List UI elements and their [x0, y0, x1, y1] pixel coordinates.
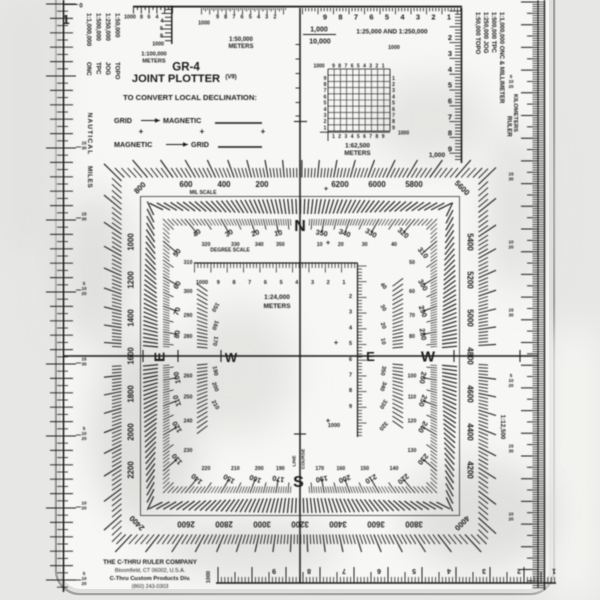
svg-text:9: 9: [448, 144, 452, 153]
svg-text:2: 2: [327, 280, 330, 286]
svg-text:7: 7: [369, 134, 372, 140]
svg-text:8: 8: [338, 13, 342, 22]
svg-text:30: 30: [81, 361, 87, 366]
svg-text:5: 5: [357, 64, 360, 70]
svg-text:METERS: METERS: [142, 59, 166, 65]
svg-text:1:500,000 TPC: 1:500,000 TPC: [490, 12, 496, 53]
svg-text:METERS: METERS: [344, 150, 370, 157]
svg-text:20: 20: [338, 242, 344, 248]
svg-text:4: 4: [351, 134, 354, 140]
svg-text:4: 4: [392, 94, 395, 100]
svg-text:150: 150: [360, 466, 369, 472]
svg-text:10,000: 10,000: [309, 39, 331, 46]
svg-text:JOINT PLOTTER: JOINT PLOTTER: [132, 73, 220, 85]
svg-text:5200: 5200: [466, 271, 475, 289]
svg-text:30: 30: [81, 216, 87, 221]
svg-text:4: 4: [363, 64, 366, 70]
svg-text:6: 6: [448, 97, 452, 106]
svg-text:5400: 5400: [466, 233, 475, 251]
svg-text:5: 5: [349, 341, 352, 347]
svg-text:2: 2: [338, 134, 341, 140]
svg-text:8: 8: [338, 64, 341, 70]
svg-text:7: 7: [345, 64, 348, 70]
svg-text:+: +: [326, 240, 330, 247]
svg-text:MIL SCALE: MIL SCALE: [190, 190, 218, 196]
svg-text:1:25,000 AND 1:250,000: 1:25,000 AND 1:250,000: [356, 29, 428, 36]
svg-text:7: 7: [392, 113, 395, 119]
svg-text:20: 20: [508, 244, 514, 249]
svg-text:2800: 2800: [215, 520, 233, 529]
svg-text:120: 120: [408, 419, 417, 425]
svg-text:9: 9: [323, 13, 327, 22]
svg-text:230: 230: [184, 448, 193, 454]
svg-text:1: 1: [392, 76, 395, 82]
svg-text:6: 6: [241, 15, 244, 21]
svg-text:3400: 3400: [329, 520, 347, 529]
svg-text:10: 10: [317, 242, 323, 248]
svg-text:3: 3: [311, 280, 314, 286]
svg-text:4: 4: [161, 19, 164, 25]
svg-text:1: 1: [342, 280, 345, 286]
svg-text:1,000: 1,000: [429, 152, 446, 159]
svg-text:C-Thru Custom Products Div.: C-Thru Custom Products Div.: [110, 576, 191, 582]
svg-text:1:250,000 JOG: 1:250,000 JOG: [482, 12, 488, 54]
svg-text:N: N: [294, 218, 306, 235]
svg-text:METERS: METERS: [263, 303, 291, 310]
svg-text:7: 7: [349, 373, 352, 379]
svg-text:9: 9: [332, 64, 335, 70]
svg-text:9: 9: [272, 567, 276, 574]
svg-text:1000: 1000: [124, 15, 136, 21]
svg-text:4: 4: [447, 567, 451, 574]
svg-text:8: 8: [232, 280, 235, 286]
svg-text:80: 80: [409, 334, 415, 340]
svg-text:50: 50: [409, 260, 415, 266]
svg-text:W: W: [421, 349, 436, 366]
svg-text:4200: 4200: [466, 461, 475, 479]
svg-text:9: 9: [392, 125, 395, 131]
svg-text:1000: 1000: [196, 280, 208, 286]
svg-text:3: 3: [369, 64, 372, 70]
svg-text:2: 2: [273, 15, 276, 21]
svg-text:5800: 5800: [405, 180, 423, 189]
svg-text:1000: 1000: [398, 131, 409, 137]
svg-text:220: 220: [202, 466, 211, 472]
svg-text:20: 20: [508, 383, 514, 388]
svg-text:20: 20: [81, 436, 87, 441]
svg-text:5: 5: [357, 134, 360, 140]
svg-text:130: 130: [408, 448, 417, 454]
svg-text:250: 250: [184, 395, 193, 401]
svg-text:4: 4: [156, 15, 159, 21]
svg-text:1:1,000,000 ONC & MILLIMETER: 1:1,000,000 ONC & MILLIMETER: [498, 12, 504, 104]
svg-text:3200: 3200: [291, 520, 309, 529]
svg-text:70: 70: [409, 313, 415, 319]
svg-text:5: 5: [324, 101, 327, 107]
svg-text:THE C-THRU RULER COMPANY: THE C-THRU RULER COMPANY: [103, 559, 198, 566]
svg-text:3: 3: [265, 15, 268, 21]
svg-text:6: 6: [363, 134, 366, 140]
svg-text:6: 6: [377, 567, 381, 574]
svg-text:ONC: ONC: [85, 62, 92, 76]
svg-text:1:250,000: 1:250,000: [104, 13, 111, 41]
svg-text:8: 8: [448, 128, 452, 137]
svg-text:JOG: JOG: [104, 62, 111, 75]
svg-text:(V9): (V9): [225, 75, 236, 81]
svg-text:6: 6: [148, 15, 151, 21]
svg-text:MILES: MILES: [86, 166, 93, 189]
svg-text:(860) 243-0303: (860) 243-0303: [132, 584, 169, 590]
svg-text:2000: 2000: [126, 423, 135, 441]
svg-text:4400: 4400: [466, 423, 475, 441]
svg-text:310: 310: [184, 260, 193, 266]
svg-text:5: 5: [280, 280, 283, 286]
svg-text:240: 240: [184, 419, 193, 425]
svg-text:1:50,000: 1:50,000: [114, 13, 121, 38]
svg-text:3: 3: [392, 88, 395, 94]
svg-text:1: 1: [62, 12, 69, 27]
svg-text:5: 5: [412, 567, 416, 574]
svg-text:4600: 4600: [466, 385, 475, 403]
svg-text:TO CONVERT LOCAL DECLINATION:: TO CONVERT LOCAL DECLINATION:: [123, 93, 257, 102]
svg-text:340: 340: [255, 242, 264, 248]
svg-text:4: 4: [324, 107, 327, 113]
svg-text:METERS: METERS: [228, 44, 253, 50]
svg-text:TOPO: TOPO: [114, 62, 121, 80]
svg-text:1:12,500: 1:12,500: [499, 415, 506, 440]
svg-text:160: 160: [336, 466, 345, 472]
svg-text:3: 3: [482, 567, 486, 574]
svg-text:1400: 1400: [126, 309, 135, 327]
svg-text:GR-4: GR-4: [172, 62, 200, 74]
svg-text:9: 9: [217, 280, 220, 286]
svg-text:40: 40: [391, 242, 397, 248]
svg-text:7: 7: [248, 280, 251, 286]
svg-text:5: 5: [385, 13, 389, 22]
svg-text:1:1,000,000: 1:1,000,000: [85, 13, 92, 47]
svg-text:9: 9: [349, 404, 352, 410]
svg-text:1: 1: [324, 125, 327, 131]
svg-text:6000: 6000: [368, 180, 386, 189]
svg-text:S: S: [293, 474, 304, 491]
svg-text:MAGNETIC: MAGNETIC: [114, 140, 152, 149]
svg-text:2: 2: [349, 294, 352, 300]
svg-text:200: 200: [255, 466, 264, 472]
svg-text:1:100,000: 1:100,000: [141, 52, 166, 58]
svg-text:6: 6: [351, 64, 354, 70]
svg-text:1000: 1000: [388, 45, 400, 51]
svg-text:6: 6: [160, 26, 163, 32]
svg-text:2: 2: [324, 119, 327, 125]
svg-text:1: 1: [332, 134, 335, 140]
svg-text:6: 6: [392, 107, 395, 113]
svg-text:1000: 1000: [206, 571, 212, 583]
svg-text:COURSE: COURSE: [301, 448, 307, 469]
svg-text:600: 600: [179, 180, 193, 189]
svg-text:8: 8: [140, 15, 143, 21]
svg-text:2: 2: [517, 567, 521, 574]
svg-text:1: 1: [447, 13, 451, 22]
svg-text:6: 6: [264, 280, 267, 286]
svg-text:8: 8: [392, 119, 395, 125]
svg-text:7: 7: [232, 15, 235, 21]
svg-text:3: 3: [349, 310, 352, 316]
svg-text:Bloomfield, CT 06002, U.S.A.: Bloomfield, CT 06002, U.S.A.: [115, 568, 185, 574]
svg-text:RULER: RULER: [506, 116, 512, 137]
svg-text:8: 8: [376, 134, 379, 140]
svg-text:20: 20: [81, 291, 87, 296]
svg-text:+: +: [139, 127, 144, 136]
svg-text:1800: 1800: [126, 385, 135, 403]
svg-text:260: 260: [184, 374, 193, 380]
svg-text:3: 3: [324, 113, 327, 119]
svg-text:1:62,500: 1:62,500: [345, 143, 370, 150]
svg-text:+: +: [261, 127, 266, 136]
svg-text:1000: 1000: [126, 233, 135, 251]
svg-text:100: 100: [408, 374, 417, 380]
svg-text:2: 2: [392, 82, 395, 88]
svg-text:1:50,000 TOPO: 1:50,000 TOPO: [474, 12, 480, 55]
svg-text:2: 2: [448, 33, 452, 42]
svg-text:110: 110: [408, 395, 416, 401]
svg-text:30: 30: [508, 312, 514, 317]
svg-text:9: 9: [216, 15, 219, 21]
svg-text:4800: 4800: [466, 347, 475, 365]
svg-text:8: 8: [324, 82, 327, 88]
svg-text:1000: 1000: [313, 64, 324, 70]
svg-text:1600: 1600: [126, 347, 135, 365]
svg-text:6: 6: [349, 357, 352, 363]
svg-text:300: 300: [184, 289, 193, 295]
svg-text:8: 8: [160, 34, 163, 40]
svg-text:9: 9: [324, 76, 327, 82]
svg-text:10: 10: [379, 338, 386, 345]
svg-text:+: +: [200, 127, 205, 136]
svg-text:5000: 5000: [466, 309, 475, 327]
svg-text:3: 3: [416, 13, 420, 22]
svg-text:400: 400: [217, 180, 231, 189]
svg-text:DEGREE SCALE: DEGREE SCALE: [210, 248, 250, 254]
svg-text:8: 8: [307, 567, 311, 574]
svg-text:W: W: [225, 350, 238, 365]
svg-text:1200: 1200: [126, 271, 135, 289]
svg-text:7: 7: [354, 13, 358, 22]
svg-text:1000: 1000: [152, 42, 164, 48]
svg-text:MAGNETIC: MAGNETIC: [163, 116, 201, 125]
svg-text:E: E: [366, 349, 375, 364]
svg-text:1:500,000: 1:500,000: [95, 13, 102, 41]
svg-text:KILOMETERS: KILOMETERS: [512, 94, 518, 132]
svg-text:190: 190: [276, 466, 285, 472]
svg-text:1:24,000: 1:24,000: [264, 294, 290, 301]
svg-text:LINE: LINE: [292, 455, 298, 467]
svg-text:140: 140: [390, 466, 399, 472]
svg-text:20: 20: [508, 84, 514, 89]
svg-text:+: +: [326, 418, 330, 425]
svg-text:+: +: [334, 340, 338, 347]
svg-text:6: 6: [369, 13, 373, 22]
svg-text:GRID: GRID: [114, 116, 132, 125]
svg-text:20: 20: [508, 516, 514, 521]
svg-text:1: 1: [382, 64, 385, 70]
svg-text:5: 5: [448, 81, 452, 90]
svg-text:7: 7: [448, 113, 452, 122]
svg-text:8: 8: [349, 388, 352, 394]
svg-text:E: E: [152, 352, 169, 362]
svg-text:280: 280: [184, 334, 193, 340]
svg-text:3600: 3600: [367, 520, 385, 529]
svg-text:3800: 3800: [405, 520, 423, 529]
svg-text:1000: 1000: [198, 21, 210, 27]
svg-text:20: 20: [81, 581, 87, 586]
svg-text:2: 2: [376, 64, 379, 70]
svg-text:30: 30: [508, 448, 514, 453]
svg-text:200: 200: [255, 180, 269, 189]
svg-text:6200: 6200: [331, 180, 349, 189]
svg-text:170: 170: [315, 466, 324, 472]
svg-text:9: 9: [382, 134, 385, 140]
svg-text:30: 30: [362, 242, 368, 248]
svg-text:3: 3: [345, 134, 348, 140]
svg-text:5: 5: [392, 101, 395, 107]
svg-text:2600: 2600: [177, 520, 195, 529]
svg-text:NAUTICAL: NAUTICAL: [86, 113, 93, 156]
svg-text:3000: 3000: [253, 520, 271, 529]
svg-text:60: 60: [409, 289, 415, 295]
svg-text:5: 5: [249, 15, 252, 21]
svg-text:6: 6: [324, 94, 327, 100]
svg-text:1,000: 1,000: [310, 27, 328, 34]
svg-text:320: 320: [202, 242, 211, 248]
svg-text:7: 7: [324, 88, 327, 94]
svg-text:210: 210: [231, 466, 240, 472]
svg-text:+: +: [324, 186, 328, 193]
svg-text:1: 1: [552, 567, 556, 574]
svg-text:30: 30: [508, 176, 514, 181]
svg-text:3: 3: [448, 49, 452, 58]
svg-text:TPC: TPC: [95, 62, 102, 75]
svg-text:350: 350: [276, 242, 285, 248]
svg-text:7: 7: [342, 567, 346, 574]
svg-text:10: 10: [274, 228, 283, 238]
svg-text:2200: 2200: [126, 461, 135, 479]
svg-text:80: 80: [172, 330, 182, 339]
svg-text:290: 290: [184, 313, 193, 319]
svg-text:1:50,000: 1:50,000: [229, 37, 253, 43]
svg-text:8: 8: [224, 15, 227, 21]
svg-text:GRID: GRID: [191, 140, 209, 149]
svg-text:2: 2: [431, 13, 435, 22]
svg-text:20: 20: [81, 505, 87, 510]
